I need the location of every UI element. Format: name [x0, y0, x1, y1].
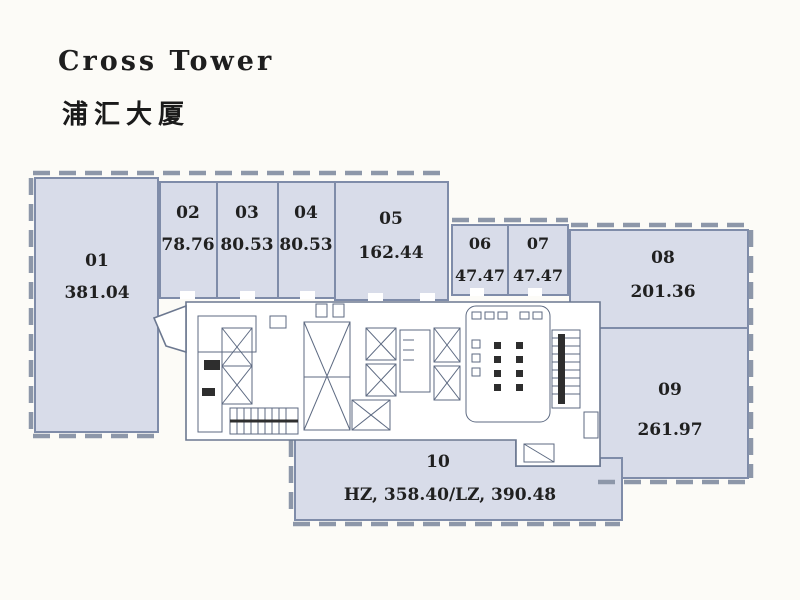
unit-10-area: HZ, 358.40/LZ, 390.48 — [344, 485, 556, 505]
unit-03-area: 80.53 — [220, 235, 273, 255]
unit-05-number: 05 — [379, 209, 403, 229]
unit-02-region: 02 78.76 — [160, 182, 217, 298]
fixture — [204, 360, 220, 370]
unit-07-area: 47.47 — [513, 266, 563, 285]
unit-06-number: 06 — [469, 234, 491, 253]
unit-10-number: 10 — [426, 452, 450, 472]
unit-03-number: 03 — [235, 203, 259, 223]
unit-06-area: 47.47 — [455, 266, 505, 285]
unit-02-area: 78.76 — [161, 235, 214, 255]
unit-01-region: 01 381.04 — [35, 178, 158, 432]
unit-09-area: 261.97 — [637, 420, 702, 440]
unit-09-region: 09 261.97 — [598, 328, 748, 478]
unit-01-area: 381.04 — [64, 283, 129, 303]
unit-07-region: 07 47.47 — [508, 225, 568, 295]
floor-plan-page: Cross Tower 浦汇大厦 01 381.04 02 78.76 03 8… — [0, 0, 800, 600]
unit-04-region: 04 80.53 — [278, 182, 335, 298]
unit-06-region: 06 47.47 — [452, 225, 508, 295]
unit-01-number: 01 — [85, 251, 109, 271]
unit-08-area: 201.36 — [630, 282, 695, 302]
unit-08-number: 08 — [651, 248, 675, 268]
unit-02-number: 02 — [176, 203, 200, 223]
unit-05-region: 05 162.44 — [335, 182, 448, 300]
unit-07-number: 07 — [527, 234, 549, 253]
floor-plan: 01 381.04 02 78.76 03 80.53 04 80.53 05 … — [0, 0, 800, 600]
unit-05-area: 162.44 — [358, 243, 423, 263]
fixture — [202, 388, 215, 396]
unit-04-number: 04 — [294, 203, 318, 223]
unit-09-number: 09 — [658, 380, 682, 400]
unit-03-region: 03 80.53 — [217, 182, 278, 298]
unit-04-area: 80.53 — [279, 235, 332, 255]
